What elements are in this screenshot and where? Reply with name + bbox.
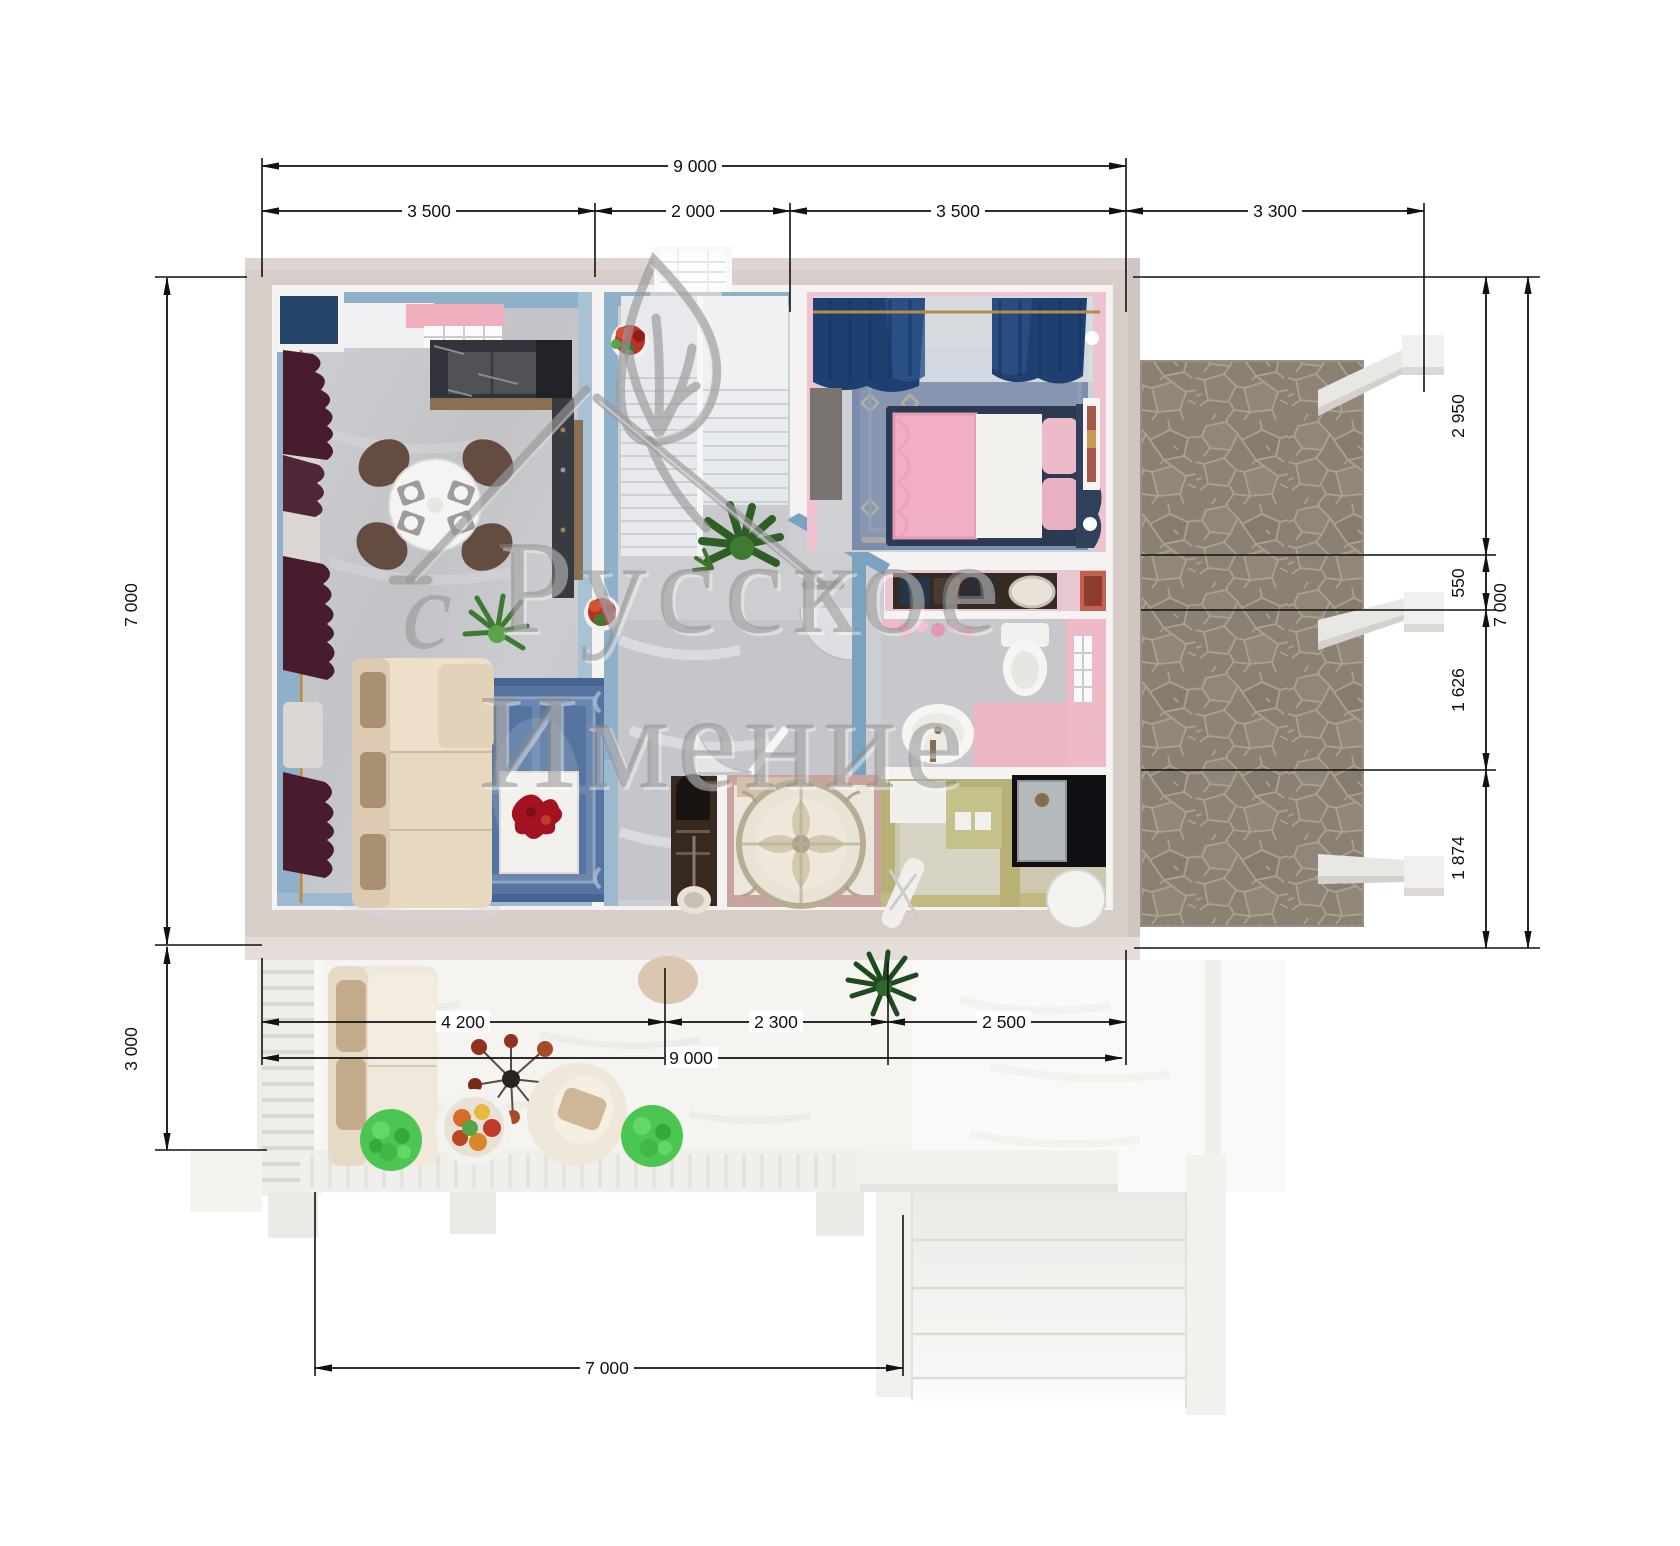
svg-text:3 500: 3 500 — [936, 201, 980, 221]
svg-text:1 874: 1 874 — [1448, 836, 1468, 880]
svg-text:7 000: 7 000 — [1490, 583, 1510, 627]
svg-text:с: с — [402, 549, 452, 673]
svg-text:Русское: Русское — [496, 513, 1006, 661]
svg-text:7 000: 7 000 — [585, 1358, 629, 1378]
svg-text:550: 550 — [1448, 568, 1468, 597]
svg-text:3 300: 3 300 — [1253, 201, 1297, 221]
svg-text:2 500: 2 500 — [982, 1012, 1026, 1032]
svg-text:2 000: 2 000 — [671, 201, 715, 221]
svg-text:9 000: 9 000 — [673, 156, 717, 176]
svg-text:9 000: 9 000 — [669, 1048, 713, 1068]
svg-text:1 626: 1 626 — [1448, 668, 1468, 712]
svg-text:2 300: 2 300 — [754, 1012, 798, 1032]
svg-text:3 000: 3 000 — [121, 1027, 141, 1071]
svg-text:Имение: Имение — [478, 667, 971, 817]
svg-text:4 200: 4 200 — [441, 1012, 485, 1032]
svg-text:2 950: 2 950 — [1448, 394, 1468, 438]
svg-text:3 500: 3 500 — [407, 201, 451, 221]
svg-text:7 000: 7 000 — [121, 583, 141, 627]
